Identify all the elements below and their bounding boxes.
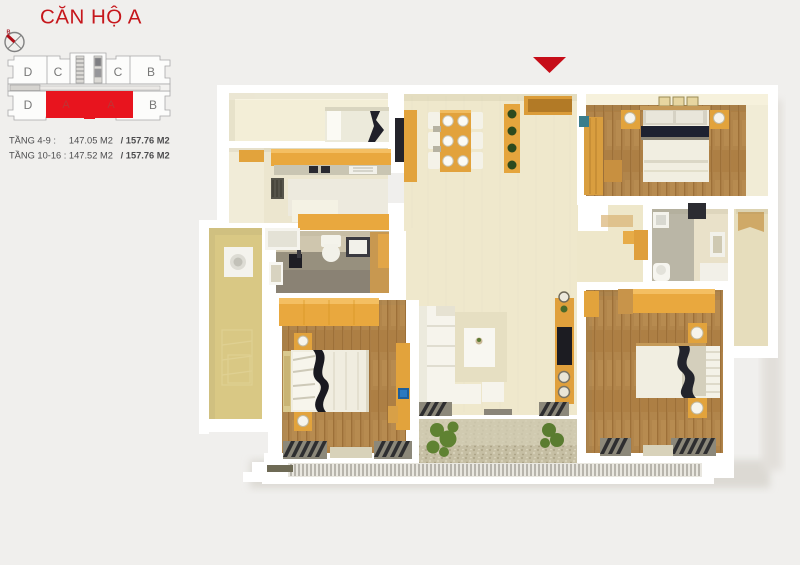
svg-text:D: D (24, 65, 33, 79)
svg-text:A: A (62, 99, 70, 111)
svg-text:A: A (107, 99, 115, 111)
svg-text:B: B (149, 98, 157, 112)
svg-text:TẦNG 10-16 : 147.52 M2 / 157: TẦNG 10-16 : 147.52 M2 / 157.76 M2 (9, 151, 170, 161)
svg-text:C: C (54, 65, 63, 79)
svg-text:B: B (7, 30, 11, 36)
svg-text:D: D (24, 98, 33, 112)
svg-text:C: C (114, 65, 123, 79)
svg-text:CĂN HỘ A: CĂN HỘ A (40, 6, 142, 29)
svg-text:B: B (147, 65, 155, 79)
svg-text:TẦNG 4-9 : 147.05 M2 / 1: TẦNG 4-9 : 147.05 M2 / 157.76 M2 (9, 136, 170, 146)
